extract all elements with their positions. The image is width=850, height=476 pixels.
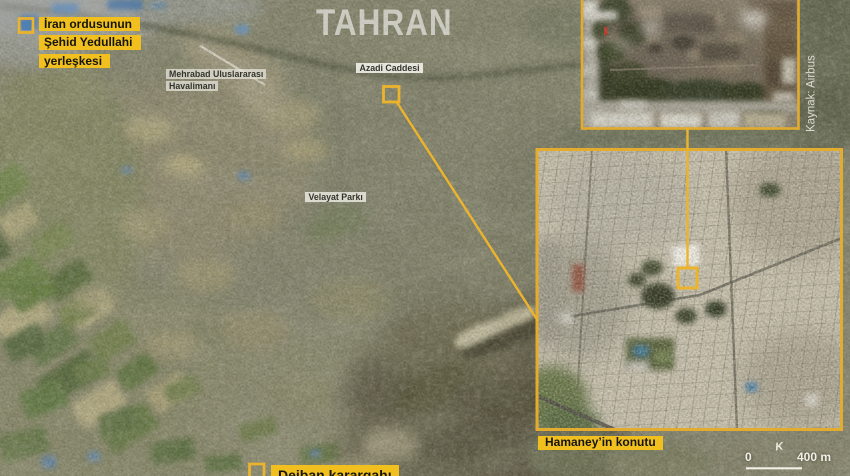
svg-text:Kaynak: Airbus: Kaynak: Airbus — [806, 55, 818, 132]
